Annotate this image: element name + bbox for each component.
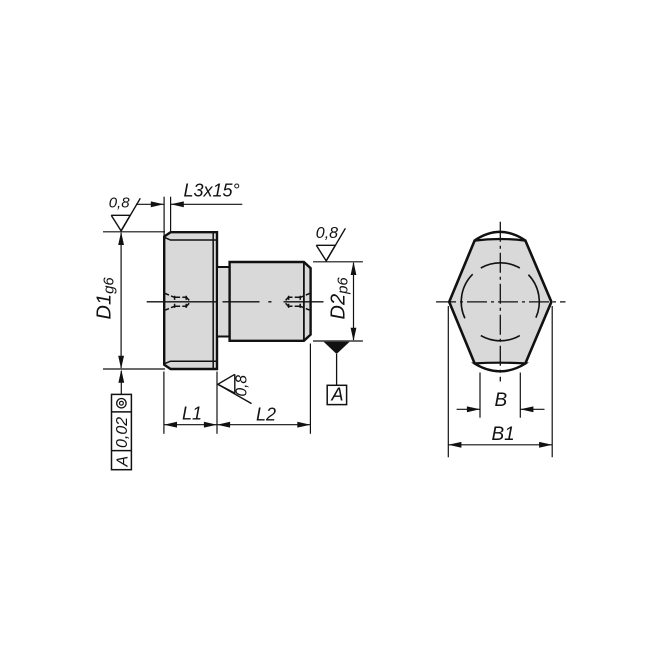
svg-text:L3x15°: L3x15° <box>184 180 240 200</box>
svg-text:L1: L1 <box>182 404 202 424</box>
svg-text:A: A <box>115 456 132 468</box>
svg-text:0,8: 0,8 <box>316 225 338 242</box>
svg-text:A: A <box>331 385 344 405</box>
svg-text:B: B <box>495 390 508 411</box>
svg-text:L2: L2 <box>256 404 276 424</box>
svg-text:0,8: 0,8 <box>109 195 131 212</box>
svg-text:B1: B1 <box>492 424 515 445</box>
svg-text:0,02: 0,02 <box>114 417 131 448</box>
svg-text:0,8: 0,8 <box>234 375 251 397</box>
